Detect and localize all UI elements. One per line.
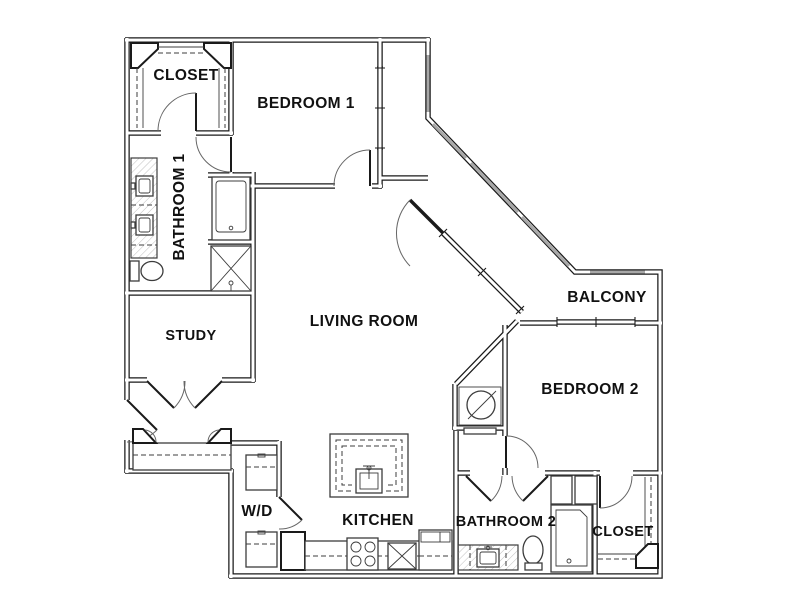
room-label-closet-top: CLOSET bbox=[153, 67, 218, 84]
linen-cabinets bbox=[551, 476, 597, 504]
stove-icon bbox=[347, 538, 378, 570]
balcony-door bbox=[396, 200, 443, 266]
room-label-balcony: BALCONY bbox=[567, 289, 647, 306]
bathtub-icon bbox=[551, 505, 592, 572]
fixtures bbox=[130, 43, 658, 572]
kitchen-sink-icon bbox=[356, 466, 382, 493]
bedroom2-door bbox=[506, 436, 538, 468]
floor-plan-drawing: CLOSET BEDROOM 1 BATHROOM 1 STUDY LIVING… bbox=[0, 0, 792, 612]
room-label-bathroom2: BATHROOM 2 bbox=[456, 514, 556, 530]
windows bbox=[375, 55, 645, 327]
bathtub-icon bbox=[212, 177, 250, 240]
dryer-icon bbox=[246, 531, 277, 567]
bedroom1-door bbox=[334, 150, 370, 186]
floor-plan-page: CLOSET BEDROOM 1 BATHROOM 1 STUDY LIVING… bbox=[0, 0, 792, 612]
room-label-living-room: LIVING ROOM bbox=[310, 313, 419, 330]
living-balcony-window bbox=[439, 229, 524, 314]
study-french-door-right bbox=[184, 381, 222, 408]
shower-icon bbox=[211, 246, 251, 291]
room-label-bedroom1: BEDROOM 1 bbox=[257, 95, 354, 112]
kitchen-counter bbox=[281, 530, 452, 570]
refrigerator-icon bbox=[419, 530, 452, 570]
laundry-door bbox=[279, 497, 302, 529]
toilet-icon bbox=[130, 261, 163, 281]
room-label-bathroom1: BATHROOM 1 bbox=[171, 153, 188, 260]
closet1-door bbox=[158, 93, 196, 131]
room-label-study: STUDY bbox=[165, 328, 216, 344]
built-in-counter bbox=[133, 429, 231, 470]
bathroom1-door bbox=[196, 137, 231, 172]
bathroom1-vanity bbox=[131, 158, 157, 258]
room-label-closet-bottom: CLOSET bbox=[592, 524, 653, 540]
study-french-door-left bbox=[147, 381, 185, 408]
room-label-laundry: W/D bbox=[241, 503, 272, 520]
bedroom2-balcony-window bbox=[557, 317, 635, 327]
bathroom2-double-door bbox=[466, 476, 548, 501]
toilet-icon bbox=[523, 536, 543, 570]
room-label-bedroom2: BEDROOM 2 bbox=[541, 381, 638, 398]
bathroom2-vanity bbox=[458, 545, 518, 570]
kitchen-island bbox=[330, 434, 408, 497]
room-label-kitchen: KITCHEN bbox=[342, 512, 414, 529]
washer-icon bbox=[246, 454, 277, 490]
dishwasher-icon bbox=[388, 543, 416, 569]
bedroom1-window bbox=[375, 66, 385, 150]
vanity-sink-icon bbox=[477, 546, 499, 567]
closet1-shelving bbox=[131, 43, 231, 128]
closet2-door bbox=[600, 476, 632, 508]
